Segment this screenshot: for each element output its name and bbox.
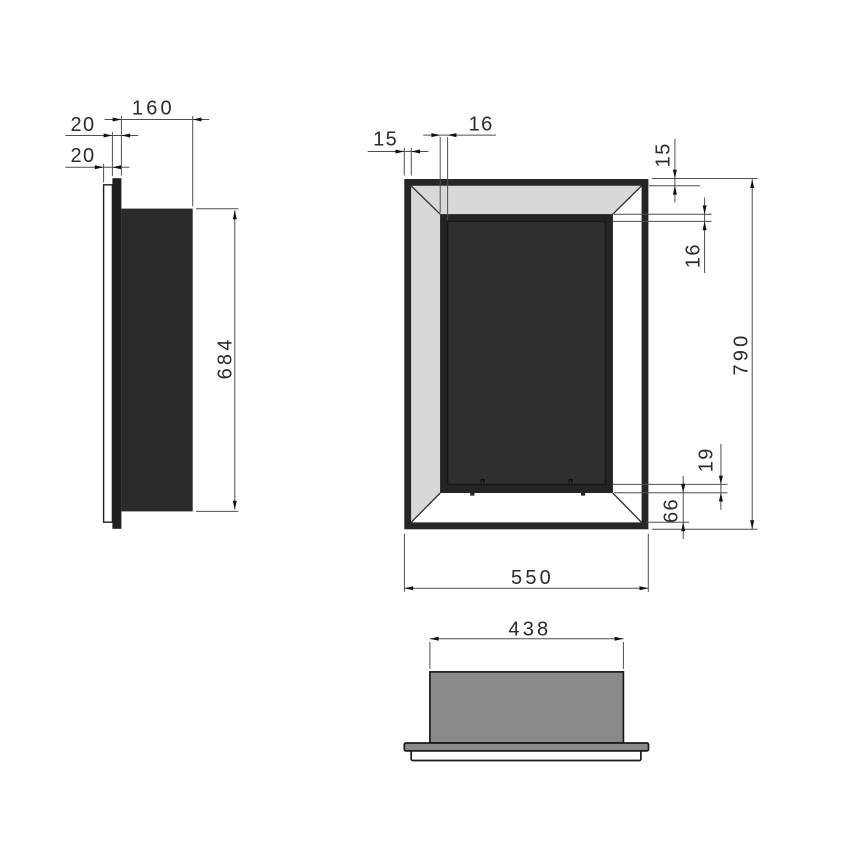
svg-text:790: 790 [730, 333, 752, 376]
svg-text:160: 160 [132, 98, 175, 120]
svg-text:15: 15 [373, 129, 398, 151]
svg-text:438: 438 [508, 619, 551, 641]
svg-text:684: 684 [214, 336, 236, 379]
svg-text:16: 16 [469, 114, 494, 136]
svg-text:16: 16 [683, 243, 705, 268]
svg-text:550: 550 [511, 567, 554, 589]
svg-text:66: 66 [660, 498, 682, 523]
svg-text:19: 19 [695, 447, 717, 472]
svg-text:15: 15 [652, 142, 674, 167]
svg-text:20: 20 [70, 145, 95, 167]
svg-text:20: 20 [70, 114, 95, 136]
